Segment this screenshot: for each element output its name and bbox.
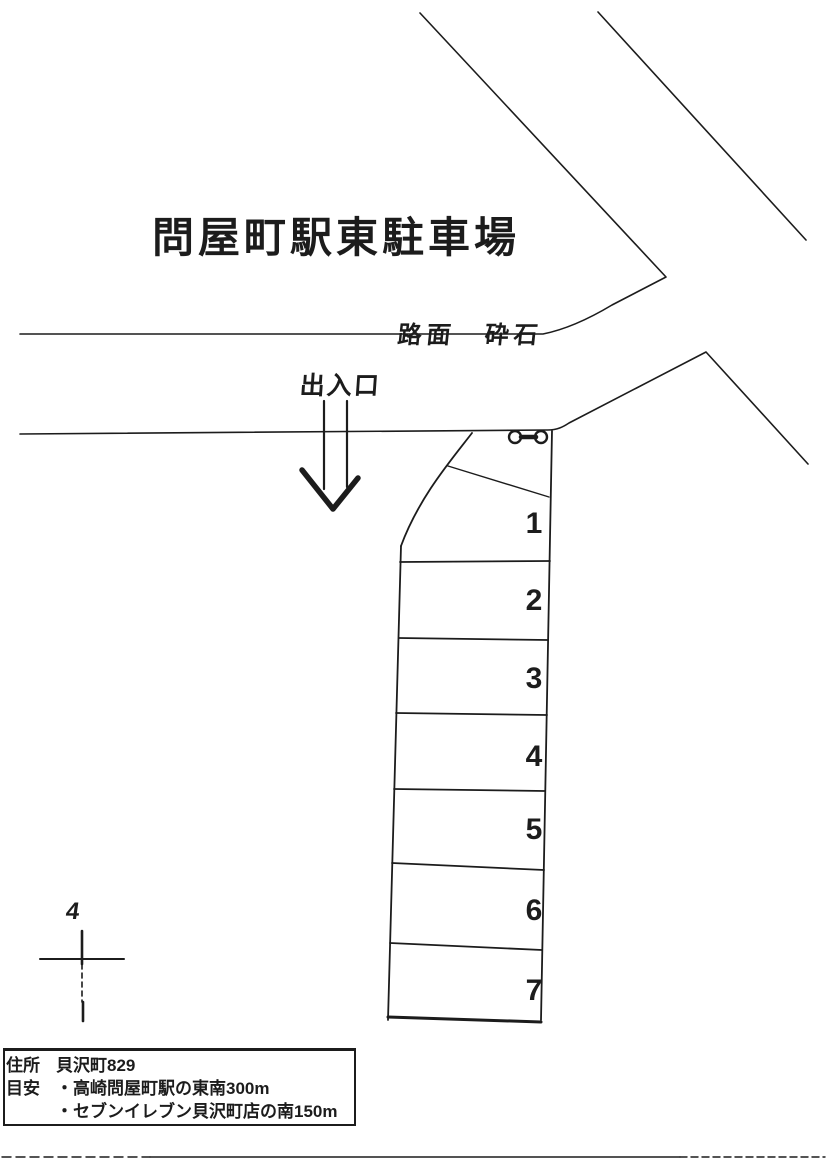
parking-entry-curve <box>401 433 472 546</box>
parking-divider-1 <box>400 561 550 562</box>
parking-space-4-number: 4 <box>520 740 548 774</box>
address-row: 住所 貝沢町829 <box>6 1054 354 1077</box>
guide-row: 目安 ・高崎問屋町駅の東南300m ・セブンイレブン貝沢町店の南150m <box>6 1077 354 1123</box>
entrance-arrow-icon <box>302 401 358 509</box>
road-south-edge-and-junction <box>20 352 808 464</box>
page-title: 問屋町駅東駐車場 <box>152 204 520 265</box>
gate-chain-icon <box>509 431 547 443</box>
parking-space-5-number: 5 <box>520 813 548 847</box>
parking-space-2-number: 2 <box>520 584 548 618</box>
parking-left-edge <box>388 546 401 1020</box>
guide-items: ・高崎問屋町駅の東南300m ・セブンイレブン貝沢町店の南150m <box>56 1077 337 1123</box>
parking-divider-3 <box>396 713 547 715</box>
road-surface-label: 路面 砕石 <box>396 315 545 350</box>
scanned-parking-map-page: 問屋町駅東駐車場 路面 砕石 出入口 1 2 3 4 5 6 7 4 住所 貝沢… <box>0 0 827 1176</box>
arrow-head <box>302 470 358 509</box>
guide-item-station: ・高崎問屋町駅の東南300m <box>56 1077 337 1100</box>
road-north-edge-and-nw-diagonal <box>20 13 666 334</box>
parking-space-7-number: 7 <box>520 974 548 1008</box>
parking-divider-5 <box>392 863 544 870</box>
parking-space-6-number: 6 <box>520 894 548 928</box>
parking-divider-6 <box>390 943 542 950</box>
parking-divider-4 <box>394 789 545 791</box>
location-info-box: 住所 貝沢町829 目安 ・高崎問屋町駅の東南300m ・セブンイレブン貝沢町店… <box>3 1048 356 1126</box>
parking-space-3-number: 3 <box>520 662 548 696</box>
address-value: 貝沢町829 <box>56 1054 135 1077</box>
parking-space-1-number: 1 <box>520 507 548 541</box>
guide-item-seveneleven: ・セブンイレブン貝沢町店の南150m <box>56 1100 337 1123</box>
survey-cross-icon <box>40 931 124 1021</box>
parking-bottom-edge <box>388 1017 541 1022</box>
site-plan-drawing <box>0 0 827 1176</box>
parking-divider-2 <box>399 638 548 640</box>
entrance-label: 出入口 <box>299 366 383 402</box>
guide-label: 目安 <box>6 1077 56 1100</box>
space1-top-diagonal <box>448 466 549 497</box>
address-label: 住所 <box>6 1054 56 1077</box>
road-ne-diagonal-edge <box>598 12 806 240</box>
